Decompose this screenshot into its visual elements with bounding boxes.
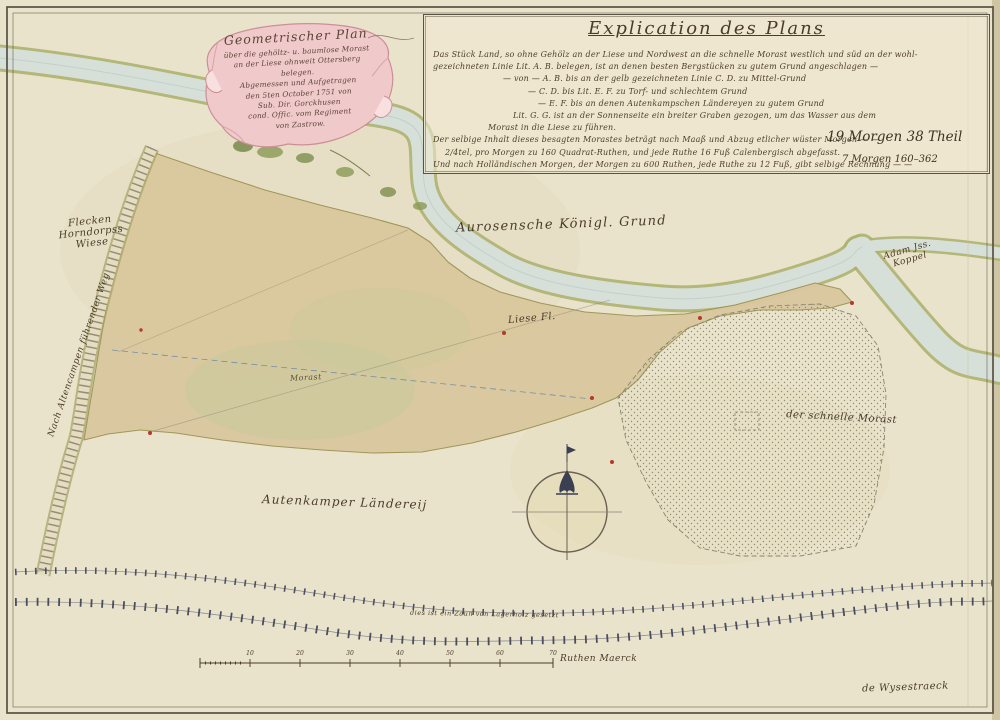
fence-rows	[15, 570, 992, 641]
scale-bar	[200, 658, 553, 668]
label-scale: Ruthen Maerck	[560, 655, 637, 665]
label-bog: Morast	[290, 373, 322, 383]
scale-tick: 40	[393, 650, 407, 657]
scale-tick: 50	[443, 650, 457, 657]
area-value-dutch: 7 Morgen 160–362	[842, 154, 938, 165]
explication-line: — von — A. B. bis an der gelb gezeichnet…	[433, 73, 983, 85]
bog-green-wash	[290, 288, 470, 372]
explication-title: Explication des Plans	[424, 18, 989, 39]
scale-tick: 30	[343, 650, 357, 657]
scale-tick: 10	[243, 650, 257, 657]
scale-tick: 70	[546, 650, 560, 657]
explication-lines: Das Stück Land, so ohne Gehölz an der Li…	[433, 49, 983, 171]
explication-line: — E. F. bis an denen Autenkampschen Länd…	[433, 98, 983, 110]
explication-line: Lit. G. G. ist an der Sonnenseite ein br…	[433, 110, 983, 122]
scale-tick: 60	[493, 650, 507, 657]
explication-line: — C. D. bis Lit. E. F. zu Torf- und schl…	[433, 86, 983, 98]
explication-line: Das Stück Land, so ohne Gehölz an der Li…	[433, 49, 983, 61]
area-value-royal: 19 Morgen 38 Theil	[827, 129, 962, 145]
scale-tick: 20	[293, 650, 307, 657]
explication-line: gezeichneten Linie Lit. A. B. belegen, i…	[433, 61, 983, 73]
map-page: Geometrischer Plan über die gehöltz- u. …	[0, 0, 1000, 720]
cartouche-title-block: Geometrischer Plan über die gehöltz- u. …	[210, 25, 385, 135]
explication-box: Explication des Plans Das Stück Land, so…	[423, 14, 990, 174]
